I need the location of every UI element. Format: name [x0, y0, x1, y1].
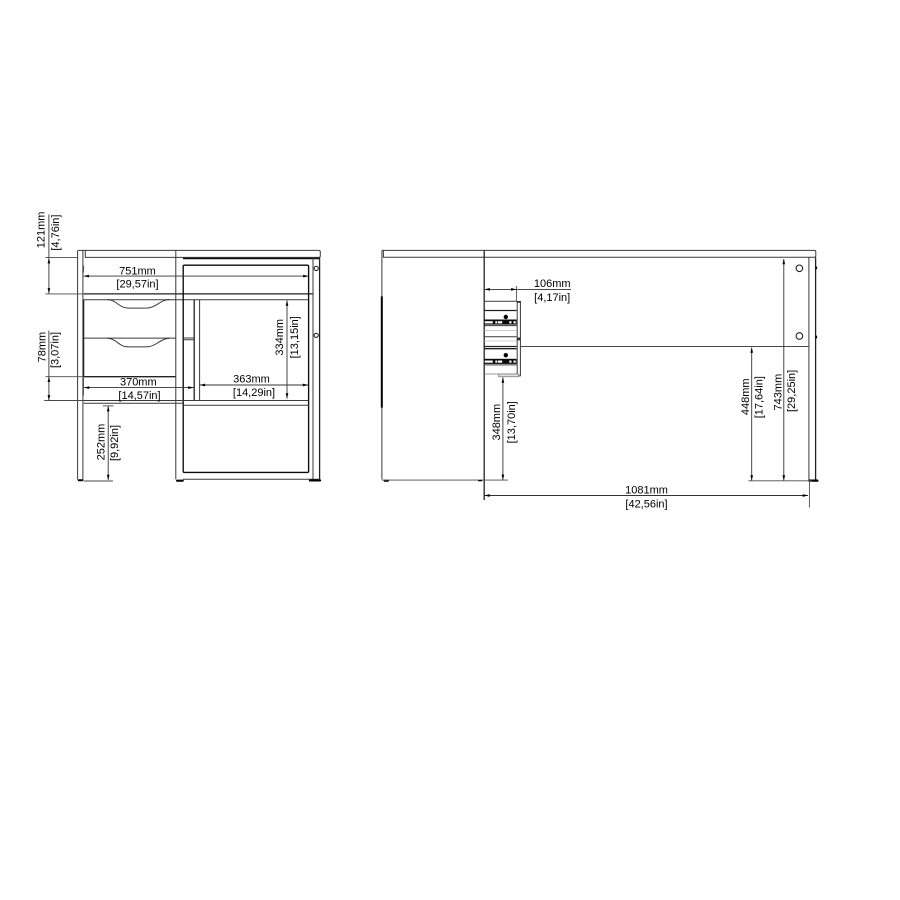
svg-text:[29,57in]: [29,57in]	[116, 278, 158, 290]
svg-text:[13,70in]: [13,70in]	[506, 401, 518, 443]
svg-text:[4,76in]: [4,76in]	[50, 215, 62, 251]
svg-text:78mm: 78mm	[37, 332, 49, 363]
svg-text:[3,07in]: [3,07in]	[50, 332, 62, 368]
svg-text:[14,29in]: [14,29in]	[233, 387, 275, 399]
svg-text:[13,15in]: [13,15in]	[289, 316, 301, 358]
svg-text:334mm: 334mm	[274, 319, 286, 356]
svg-text:363mm: 363mm	[233, 374, 270, 386]
svg-text:743mm: 743mm	[773, 374, 785, 411]
svg-text:370mm: 370mm	[120, 376, 157, 388]
svg-text:448mm: 448mm	[740, 378, 752, 415]
svg-text:[17,64in]: [17,64in]	[754, 376, 766, 418]
svg-text:[9,92in]: [9,92in]	[109, 425, 121, 461]
svg-text:[4,17in]: [4,17in]	[534, 292, 570, 304]
svg-text:121mm: 121mm	[36, 212, 48, 249]
svg-text:252mm: 252mm	[96, 424, 108, 461]
svg-text:751mm: 751mm	[119, 265, 156, 277]
svg-text:348mm: 348mm	[491, 404, 503, 441]
svg-text:[42,56in]: [42,56in]	[625, 499, 667, 511]
svg-text:106mm: 106mm	[534, 278, 571, 290]
svg-text:[29,25in]: [29,25in]	[786, 370, 798, 412]
svg-text:[14,57in]: [14,57in]	[118, 390, 160, 402]
svg-text:1081mm: 1081mm	[625, 484, 668, 496]
